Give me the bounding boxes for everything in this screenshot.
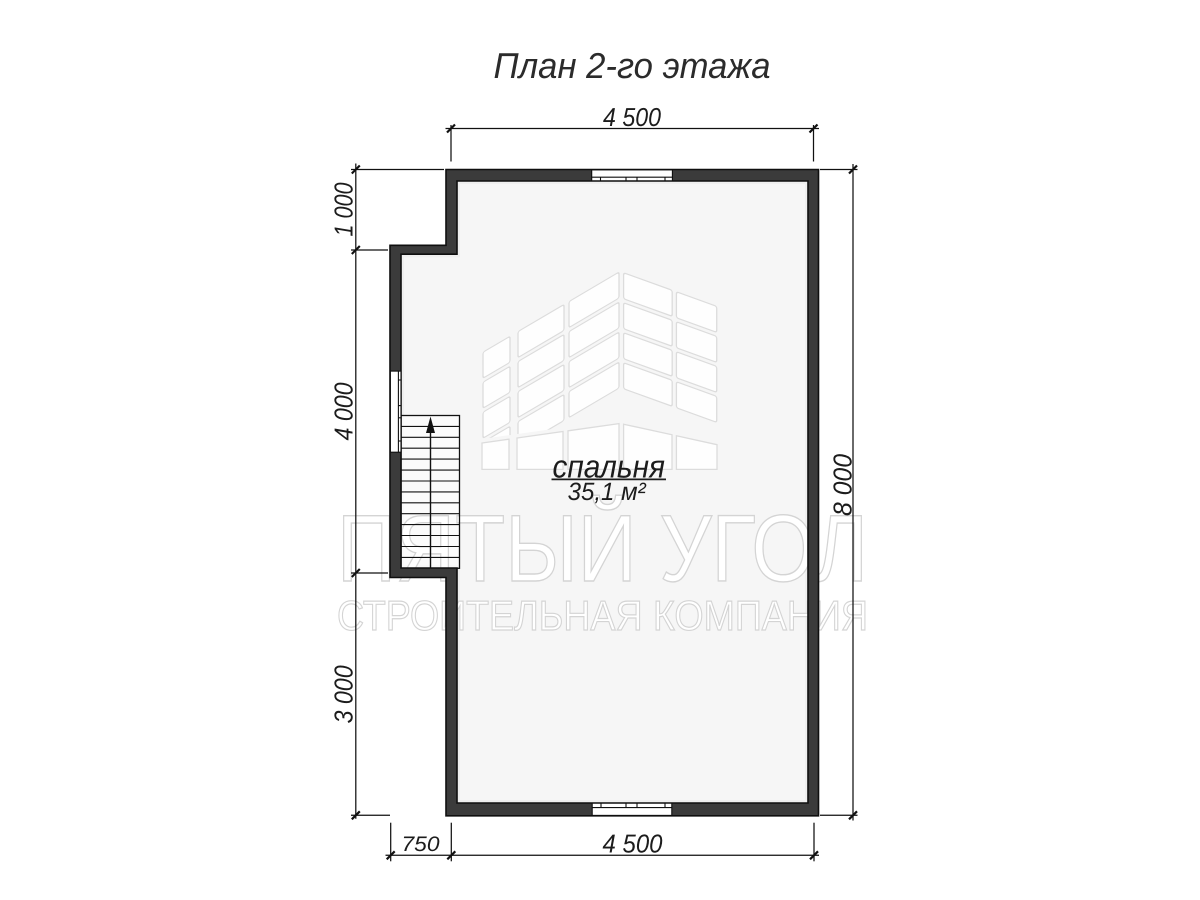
svg-text:8 000: 8 000 xyxy=(828,453,858,516)
svg-text:35,1 м²: 35,1 м² xyxy=(568,478,648,506)
svg-text:1 000: 1 000 xyxy=(329,182,359,236)
svg-text:4 000: 4 000 xyxy=(329,382,359,440)
svg-text:ПЯТЫЙ УГОЛ: ПЯТЫЙ УГОЛ xyxy=(337,495,868,602)
svg-text:4 500: 4 500 xyxy=(603,829,663,859)
svg-text:План 2-го этажа: План 2-го этажа xyxy=(494,45,771,86)
svg-text:4 500: 4 500 xyxy=(603,102,661,132)
svg-text:750: 750 xyxy=(402,833,440,856)
svg-text:СТРОИТЕЛЬНАЯ КОМПАНИЯ: СТРОИТЕЛЬНАЯ КОМПАНИЯ xyxy=(337,592,868,639)
svg-text:3 000: 3 000 xyxy=(329,665,359,723)
